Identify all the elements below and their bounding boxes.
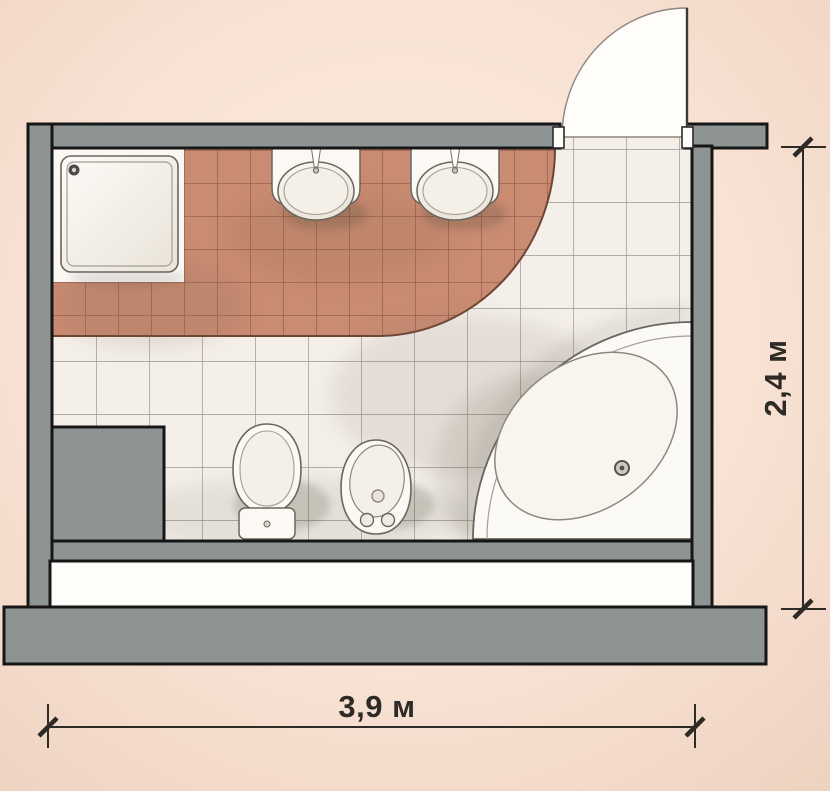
washbasin-right [411,148,506,230]
height-dimension-label: 2,4 м [758,339,793,416]
door-jamb-right [682,127,693,148]
door-jamb-left [553,127,564,148]
bidet-tap-icon [382,514,395,527]
wall-bottom-inner-face [52,541,692,562]
wall-left [28,124,52,609]
wall-bottom-cavity [50,561,693,607]
wall-bottom [4,607,766,664]
washbasin-left [272,148,367,230]
wall-top [28,124,560,148]
wall-right [692,146,712,609]
width-dimension-label: 3,9 м [338,689,415,724]
bidet-tap-icon [361,514,374,527]
floor-plan-canvas: 3,9 м 2,4 м [0,0,830,791]
wall-step-block [46,427,164,545]
wall-top-right [685,124,767,148]
floor-plan: 3,9 м 2,4 м [0,0,830,791]
shower-tray [52,148,186,287]
